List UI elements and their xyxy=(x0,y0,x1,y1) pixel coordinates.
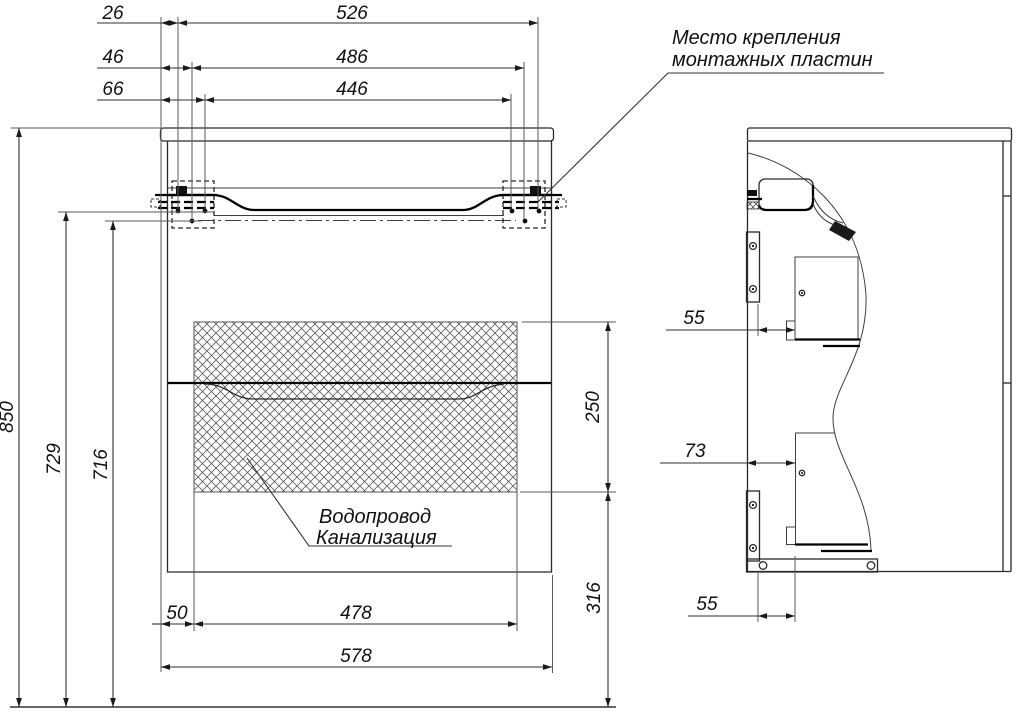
mounting-note: Место крепления монтажных пластин xyxy=(537,27,884,203)
dim-729: 729 xyxy=(44,443,65,475)
dim-55-lower: 55 xyxy=(696,594,718,615)
screw-dot xyxy=(537,209,542,214)
mounting-note-line1: Место крепления xyxy=(672,27,841,49)
upper-drawer-box xyxy=(787,257,861,346)
countertop xyxy=(161,128,554,141)
drawer-slide-bracket xyxy=(787,527,796,545)
technical-drawing-canvas: 26 526 46 486 66 446 850 729 716 250 316 xyxy=(0,0,1017,713)
sink-section xyxy=(759,179,856,241)
screw-dot xyxy=(523,219,528,224)
top-dimensions: 26 526 46 486 66 446 xyxy=(97,3,538,100)
bottom-dimensions: 50 478 578 xyxy=(152,603,552,667)
plumbing-note-line1: Водопровод xyxy=(319,506,431,528)
dim-66: 66 xyxy=(102,79,124,100)
dim-850: 850 xyxy=(0,401,18,433)
wall-rail-lower xyxy=(747,491,760,561)
dim-55-upper: 55 xyxy=(683,308,705,329)
dim-250: 250 xyxy=(583,391,604,424)
left-dimensions: 850 729 716 xyxy=(0,128,113,707)
dim-486: 486 xyxy=(336,47,368,68)
front-view: 26 526 46 486 66 446 850 729 716 250 316 xyxy=(0,3,884,707)
dim-526: 526 xyxy=(336,3,368,24)
right-dimensions: 250 316 xyxy=(583,322,608,707)
dim-716: 716 xyxy=(91,449,112,481)
plumbing-note-line2: Канализация xyxy=(316,527,437,549)
mounting-note-leader xyxy=(537,73,884,203)
dim-578: 578 xyxy=(340,646,372,667)
vanity-cabinet-drawing: 26 526 46 486 66 446 850 729 716 250 316 xyxy=(0,0,1017,713)
dim-446: 446 xyxy=(336,79,368,100)
screw-dot xyxy=(203,209,208,214)
sink-outline xyxy=(168,188,551,221)
plumbing-service-zone-hatch xyxy=(194,322,517,492)
wall-rail-upper xyxy=(747,232,760,302)
dim-50: 50 xyxy=(166,603,188,624)
dim-316: 316 xyxy=(584,582,605,614)
dim-46: 46 xyxy=(102,47,124,68)
dim-73: 73 xyxy=(684,441,706,462)
side-countertop xyxy=(748,128,1012,141)
side-dimensions: 55 73 55 xyxy=(660,304,795,622)
dim-478: 478 xyxy=(340,603,372,624)
screw-dot xyxy=(176,209,181,214)
side-view: 55 73 55 xyxy=(660,128,1012,622)
mounting-note-line2: монтажных пластин xyxy=(672,49,873,71)
dim-26: 26 xyxy=(101,3,124,24)
lower-drawer-box xyxy=(787,433,873,551)
screw-dot xyxy=(510,209,515,214)
curved-front-profile xyxy=(748,153,871,550)
side-outline xyxy=(748,128,1012,572)
bottom-plinth xyxy=(747,559,878,572)
